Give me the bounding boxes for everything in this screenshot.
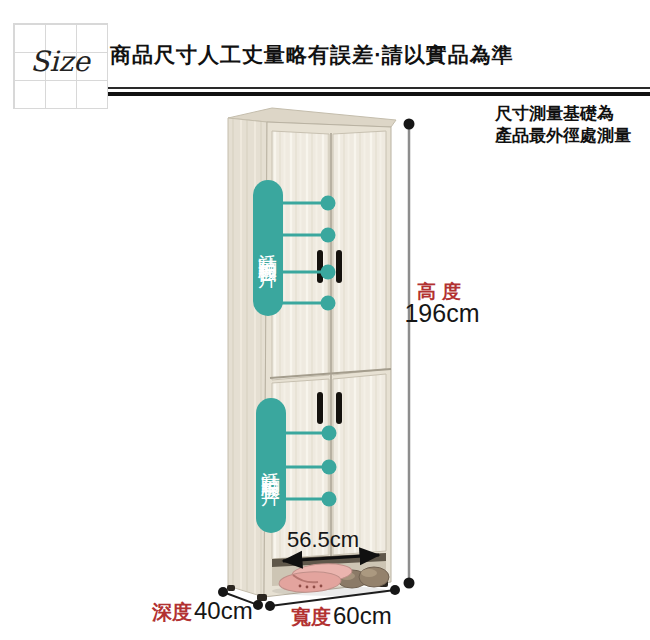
- top-partition-badge: 活動隔板四片: [253, 180, 283, 316]
- width-dimension: 寬度 60cm: [291, 602, 392, 631]
- depth-dimension-label: 深度: [152, 599, 192, 626]
- height-dimension-value: 196cm: [402, 299, 482, 328]
- depth-dimension: 深度 40cm: [152, 597, 253, 626]
- top-partition-label: 活動隔板四片: [259, 239, 278, 257]
- bottom-partition-badge: 活動隔板三片: [256, 398, 286, 533]
- cabinet-foot-back-left: [227, 585, 235, 591]
- inner-width-dimension-value: 56.5cm: [287, 527, 359, 553]
- product-size-diagram: Size 商品尺寸人工丈量略有誤差‧請以實品為準 尺寸測量基礎為 產品最外徑處測…: [0, 0, 650, 640]
- bottom-partition-label: 活動隔板三片: [262, 457, 281, 475]
- cabinet-foot-front-left: [257, 594, 267, 601]
- height-dimension-line: [404, 119, 415, 589]
- width-dimension-value: 60cm: [333, 602, 392, 630]
- width-dimension-label: 寬度: [291, 604, 331, 631]
- depth-dimension-value: 40cm: [194, 597, 253, 625]
